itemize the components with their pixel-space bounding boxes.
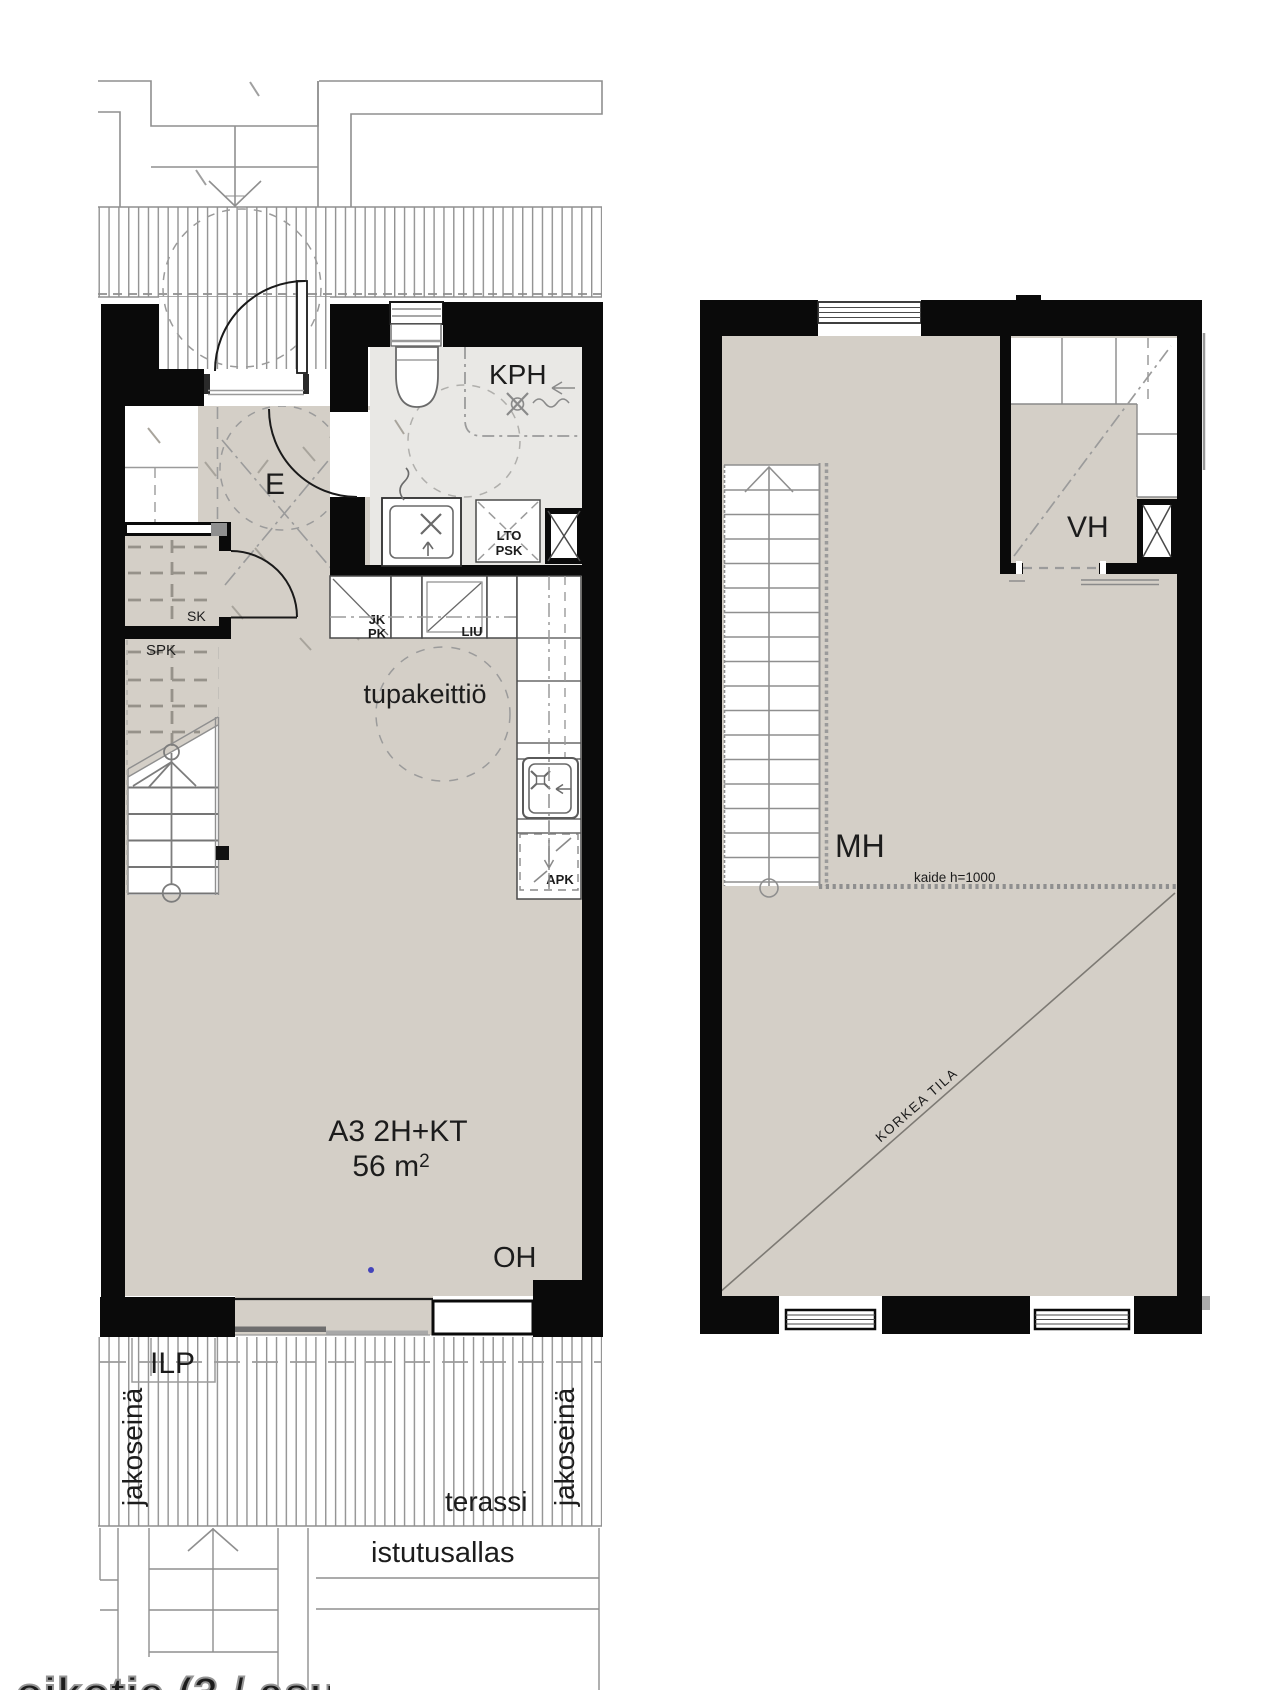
svg-text:KPH: KPH [489,359,547,390]
svg-text:56 m2: 56 m2 [352,1150,429,1183]
svg-text:PK: PK [368,626,387,641]
svg-text:jakoseinä: jakoseinä [549,1387,580,1507]
svg-text:MH: MH [835,828,885,864]
svg-text:tupakeittiö: tupakeittiö [363,679,486,709]
svg-text:kaide h=1000: kaide h=1000 [914,870,995,885]
svg-text:PSK: PSK [496,543,523,558]
svg-text:A3 2H+KT: A3 2H+KT [328,1115,467,1148]
svg-text:OH: OH [493,1242,537,1274]
svg-text:APK: APK [546,872,574,887]
svg-text:SK: SK [187,608,206,624]
svg-text:LIU: LIU [462,624,483,639]
svg-text:terassi: terassi [445,1486,527,1517]
svg-text:LTO: LTO [497,528,522,543]
svg-text:VH: VH [1067,511,1109,544]
svg-text:istutusallas: istutusallas [371,1537,514,1569]
svg-text:ILP: ILP [150,1347,195,1380]
svg-text:JK: JK [369,612,386,627]
svg-text:jakoseinä: jakoseinä [117,1387,148,1507]
svg-text:E: E [265,468,285,501]
svg-text:SPK: SPK [146,642,176,659]
